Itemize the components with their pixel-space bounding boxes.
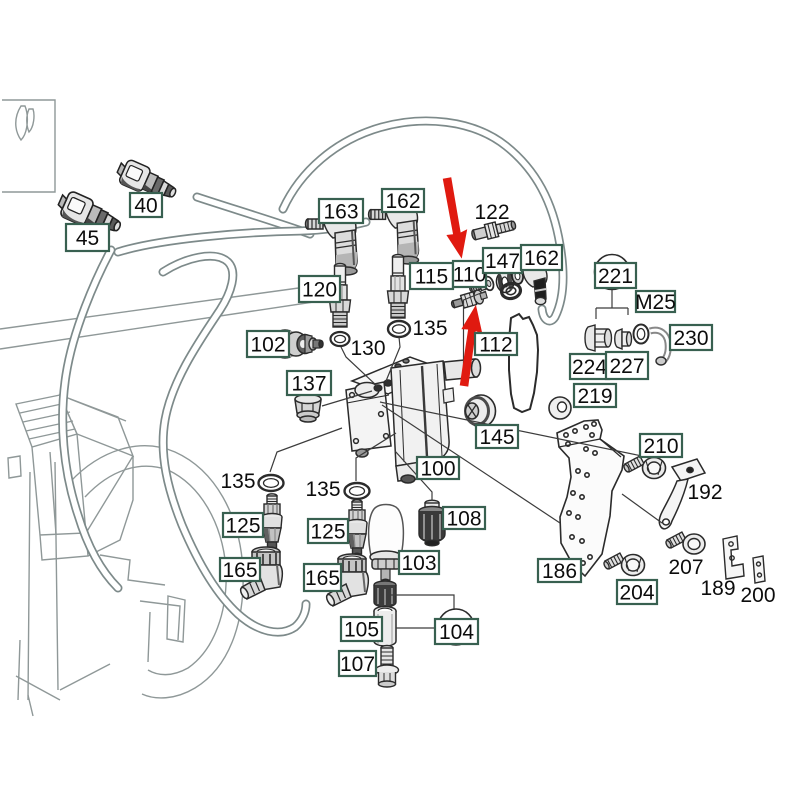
svg-text:163: 163 (323, 201, 358, 224)
svg-text:210: 210 (643, 435, 678, 458)
svg-text:192: 192 (687, 481, 722, 504)
svg-text:147: 147 (485, 250, 520, 273)
svg-text:165: 165 (222, 559, 257, 582)
svg-text:103: 103 (401, 552, 436, 575)
svg-text:104: 104 (439, 621, 474, 644)
svg-text:130: 130 (350, 337, 385, 360)
svg-text:204: 204 (619, 582, 654, 605)
svg-text:45: 45 (76, 227, 99, 250)
svg-text:102: 102 (250, 334, 285, 357)
svg-text:125: 125 (310, 521, 345, 544)
svg-text:107: 107 (340, 653, 375, 676)
svg-text:112: 112 (479, 334, 512, 357)
svg-text:230: 230 (673, 327, 708, 350)
svg-text:122: 122 (474, 201, 509, 224)
svg-text:135: 135 (305, 478, 340, 501)
svg-text:200: 200 (740, 584, 775, 607)
svg-text:162: 162 (385, 190, 420, 213)
svg-text:165: 165 (305, 567, 340, 590)
svg-text:108: 108 (446, 508, 481, 531)
svg-text:145: 145 (479, 426, 514, 449)
svg-text:M25: M25 (635, 291, 676, 314)
svg-text:115: 115 (415, 266, 448, 289)
svg-text:224: 224 (572, 356, 607, 379)
svg-text:137: 137 (291, 373, 326, 396)
svg-text:207: 207 (668, 556, 703, 579)
svg-text:227: 227 (609, 355, 644, 378)
svg-text:186: 186 (542, 560, 577, 583)
svg-text:135: 135 (220, 470, 255, 493)
svg-text:162: 162 (524, 247, 559, 270)
svg-text:120: 120 (302, 279, 337, 302)
svg-text:125: 125 (225, 515, 260, 538)
svg-text:105: 105 (344, 619, 379, 642)
svg-text:219: 219 (577, 385, 612, 408)
svg-text:135: 135 (412, 317, 447, 340)
svg-text:221: 221 (598, 265, 633, 288)
svg-text:100: 100 (420, 458, 455, 481)
svg-text:189: 189 (700, 577, 735, 600)
svg-text:40: 40 (134, 195, 157, 218)
svg-text:110: 110 (453, 264, 486, 287)
